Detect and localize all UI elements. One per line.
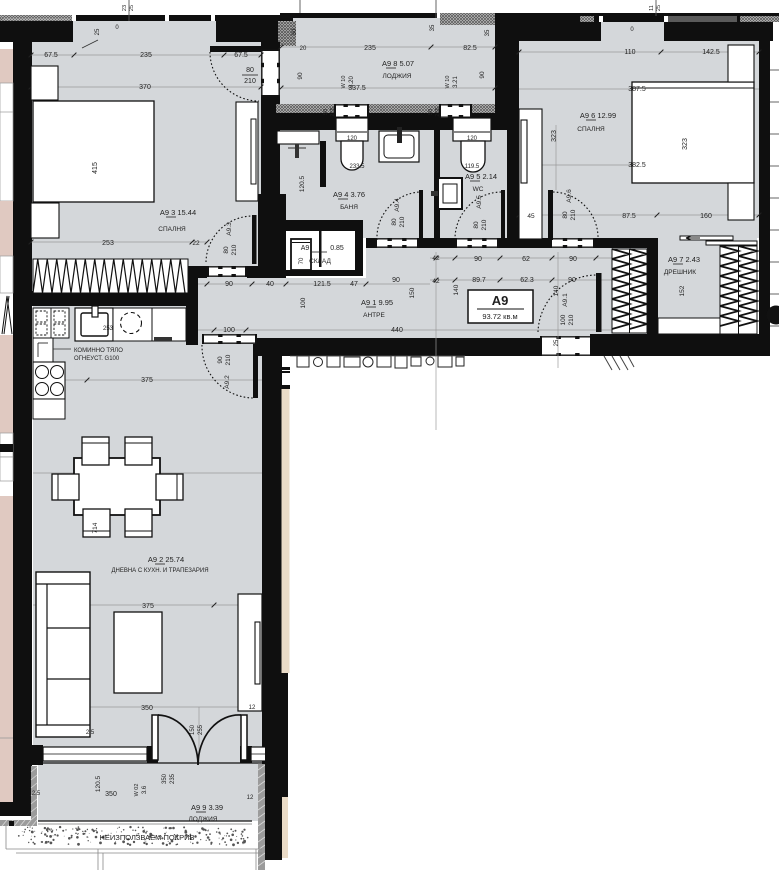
svg-text:ДРЕШНИК: ДРЕШНИК xyxy=(664,269,696,276)
svg-text:A9 1 9.95: A9 1 9.95 xyxy=(361,298,393,307)
svg-text:50: 50 xyxy=(428,109,434,115)
svg-text:40: 40 xyxy=(266,281,274,288)
svg-text:АНТРЕ: АНТРЕ xyxy=(363,312,385,319)
svg-text:ДНЕВНА С КУХН. И ТРАПЕЗАРИЯ: ДНЕВНА С КУХН. И ТРАПЕЗАРИЯ xyxy=(111,568,208,574)
svg-text:210: 210 xyxy=(568,314,575,325)
svg-text:160: 160 xyxy=(700,213,712,220)
svg-text:119.5: 119.5 xyxy=(465,164,480,170)
svg-text:30: 30 xyxy=(292,28,298,35)
svg-text:12: 12 xyxy=(247,795,254,801)
svg-text:255: 255 xyxy=(198,724,204,735)
svg-text:67.5: 67.5 xyxy=(44,52,58,59)
svg-text:210: 210 xyxy=(481,219,488,230)
svg-text:80: 80 xyxy=(246,67,254,74)
svg-text:80: 80 xyxy=(223,246,230,254)
svg-text:A9.6: A9.6 xyxy=(566,189,573,203)
svg-text:323: 323 xyxy=(682,138,689,150)
svg-text:СПАЛНЯ: СПАЛНЯ xyxy=(158,226,186,233)
svg-text:70: 70 xyxy=(299,257,305,264)
svg-text:714: 714 xyxy=(92,522,99,533)
svg-text:42: 42 xyxy=(432,255,440,262)
svg-text:140: 140 xyxy=(553,285,560,296)
svg-text:235: 235 xyxy=(140,52,152,59)
svg-text:90: 90 xyxy=(474,256,482,263)
svg-text:35: 35 xyxy=(430,24,436,31)
svg-text:90: 90 xyxy=(479,71,486,79)
svg-text:25: 25 xyxy=(656,5,662,11)
svg-text:47: 47 xyxy=(350,281,358,288)
svg-text:62.3: 62.3 xyxy=(520,277,534,284)
svg-text:370: 370 xyxy=(139,84,151,91)
svg-text:62: 62 xyxy=(522,256,530,263)
svg-text:235: 235 xyxy=(364,45,376,52)
svg-text:90: 90 xyxy=(392,277,400,284)
svg-text:A9.4: A9.4 xyxy=(394,198,401,212)
svg-text:150: 150 xyxy=(409,287,416,298)
svg-text:120: 120 xyxy=(467,136,478,142)
svg-text:ЛОДЖИЯ: ЛОДЖИЯ xyxy=(383,73,412,80)
svg-text:A9: A9 xyxy=(301,245,310,252)
svg-text:253: 253 xyxy=(103,326,114,332)
svg-text:90: 90 xyxy=(297,72,304,80)
svg-text:A9.1: A9.1 xyxy=(562,293,569,307)
svg-text:БАНЯ: БАНЯ xyxy=(340,204,358,211)
svg-text:45: 45 xyxy=(527,213,535,220)
svg-text:375: 375 xyxy=(141,377,153,384)
svg-text:89.7: 89.7 xyxy=(472,277,486,284)
svg-text:255: 255 xyxy=(435,107,441,116)
svg-text:140: 140 xyxy=(453,284,460,295)
svg-text:233.5: 233.5 xyxy=(349,164,365,170)
svg-text:210: 210 xyxy=(231,244,238,255)
svg-text:A9.2: A9.2 xyxy=(224,375,231,389)
svg-text:A9 9 3.39: A9 9 3.39 xyxy=(191,803,223,812)
svg-text:3.6: 3.6 xyxy=(142,785,148,794)
svg-text:WC: WC xyxy=(473,186,484,193)
svg-text:210: 210 xyxy=(244,78,256,85)
svg-text:87.5: 87.5 xyxy=(622,213,636,220)
svg-text:A9.5: A9.5 xyxy=(476,195,483,209)
svg-text:ЛОДЖИЯ: ЛОДЖИЯ xyxy=(189,816,218,823)
svg-text:210: 210 xyxy=(399,216,406,227)
svg-text:235: 235 xyxy=(170,773,176,784)
svg-text:W 02: W 02 xyxy=(134,784,140,797)
svg-text:ОГНЕУСТ. G100: ОГНЕУСТ. G100 xyxy=(74,356,120,362)
svg-text:375: 375 xyxy=(142,603,154,610)
svg-text:3.21: 3.21 xyxy=(453,76,459,88)
svg-text:КОМИННО ТЯЛО: КОМИННО ТЯЛО xyxy=(74,348,123,354)
svg-text:25: 25 xyxy=(554,339,560,346)
svg-text:A9: A9 xyxy=(492,293,509,308)
svg-text:A9 8 5.07: A9 8 5.07 xyxy=(382,59,414,68)
svg-text:387.5: 387.5 xyxy=(628,86,646,93)
svg-text:A9 6 12.99: A9 6 12.99 xyxy=(580,111,616,120)
svg-text:25: 25 xyxy=(129,5,135,11)
svg-text:A9 3 15.44: A9 3 15.44 xyxy=(160,208,196,217)
svg-text:СПАЛНЯ: СПАЛНЯ xyxy=(577,126,605,133)
svg-text:100: 100 xyxy=(223,327,235,334)
svg-text:A9.3: A9.3 xyxy=(226,222,233,236)
svg-text:W 10: W 10 xyxy=(445,76,451,89)
svg-text:A9 2 25.74: A9 2 25.74 xyxy=(148,555,184,564)
svg-text:350: 350 xyxy=(105,791,117,798)
svg-text:93.72 кв.м: 93.72 кв.м xyxy=(482,312,517,321)
svg-text:255: 255 xyxy=(330,107,336,116)
svg-text:12: 12 xyxy=(249,705,256,711)
svg-text:337.5: 337.5 xyxy=(348,85,366,92)
svg-text:121.5: 121.5 xyxy=(313,281,331,288)
svg-text:35: 35 xyxy=(485,29,491,36)
svg-text:0.85: 0.85 xyxy=(330,245,344,252)
svg-text:120.5: 120.5 xyxy=(299,175,306,192)
svg-text:150: 150 xyxy=(190,724,196,735)
svg-text:W 10: W 10 xyxy=(341,76,347,89)
svg-text:382.5: 382.5 xyxy=(628,162,646,169)
svg-text:80: 80 xyxy=(391,218,398,226)
svg-text:415: 415 xyxy=(92,162,99,174)
svg-text:2.5: 2.5 xyxy=(32,791,41,797)
svg-text:80: 80 xyxy=(562,211,569,219)
svg-text:A9 7 2.43: A9 7 2.43 xyxy=(668,255,700,264)
svg-text:2.5: 2.5 xyxy=(86,730,95,736)
svg-text:90: 90 xyxy=(217,356,224,364)
svg-text:323: 323 xyxy=(551,130,558,142)
svg-text:210: 210 xyxy=(570,209,577,220)
svg-text:120.5: 120.5 xyxy=(95,775,102,792)
svg-text:90: 90 xyxy=(568,277,576,284)
svg-text:152: 152 xyxy=(679,285,686,296)
svg-text:67.5: 67.5 xyxy=(234,52,248,59)
svg-text:НЕИЗПОЛЗВАЕМ ПОКРИВ: НЕИЗПОЛЗВАЕМ ПОКРИВ xyxy=(99,833,194,842)
svg-text:50: 50 xyxy=(323,109,329,115)
svg-text:42: 42 xyxy=(432,278,440,285)
svg-text:440: 440 xyxy=(391,327,403,334)
svg-text:100: 100 xyxy=(300,297,307,308)
svg-text:80: 80 xyxy=(473,221,480,229)
svg-text:90: 90 xyxy=(569,256,577,263)
svg-text:100: 100 xyxy=(560,314,567,325)
svg-text:A9 4 3.76: A9 4 3.76 xyxy=(333,190,365,199)
svg-text:25: 25 xyxy=(95,28,101,35)
svg-text:110: 110 xyxy=(624,49,635,56)
svg-text:350: 350 xyxy=(141,705,153,712)
svg-text:120: 120 xyxy=(347,136,358,142)
svg-text:A9 5 2.14: A9 5 2.14 xyxy=(465,172,497,181)
svg-text:22: 22 xyxy=(192,240,200,247)
svg-text:82.5: 82.5 xyxy=(463,45,477,52)
svg-text:23: 23 xyxy=(122,5,128,11)
svg-text:210: 210 xyxy=(225,354,232,365)
svg-text:350: 350 xyxy=(162,773,168,784)
svg-text:СКЛАД: СКЛАД xyxy=(309,258,331,265)
svg-text:20: 20 xyxy=(300,46,307,52)
svg-text:11: 11 xyxy=(649,5,655,11)
svg-text:142.5: 142.5 xyxy=(702,49,720,56)
svg-text:253: 253 xyxy=(102,240,114,247)
svg-text:90: 90 xyxy=(225,281,233,288)
